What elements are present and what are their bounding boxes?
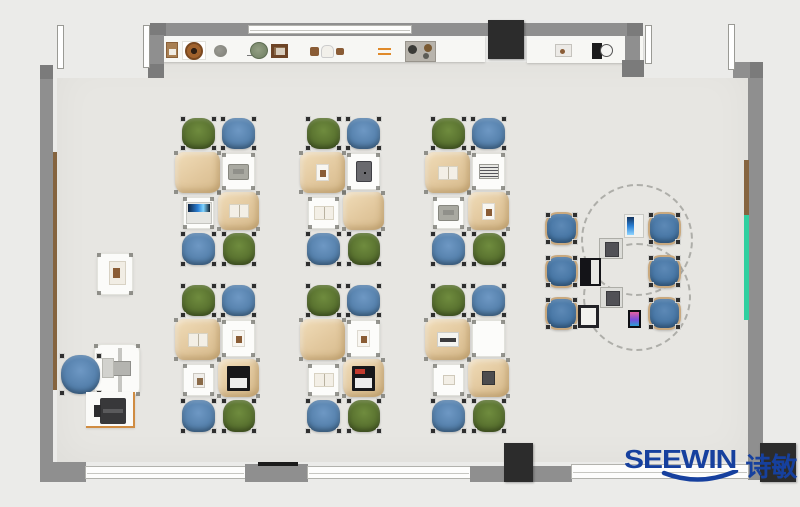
student-desk-white: [183, 197, 214, 229]
round-table-chair: [545, 255, 578, 288]
shelf-item-plate: [182, 41, 206, 60]
teacher-shelf-item: [109, 261, 126, 285]
right-wall-wood-strip: [744, 160, 749, 215]
desk-item-laptop-screen-red: [352, 366, 375, 391]
desk-item-paper: [232, 330, 245, 347]
logo-text-wrap: SEEWIN: [624, 446, 736, 480]
chair-blue: [432, 400, 465, 432]
student-desk-white: [308, 364, 339, 396]
chair-green: [223, 233, 255, 265]
round-table-rd-console: [600, 287, 623, 308]
bottom-wall-cabinet: [504, 443, 533, 482]
top-wall-corner-right: [627, 23, 643, 36]
chair-blue: [307, 233, 340, 265]
seewin-logo: SEEWIN 诗敏: [624, 446, 797, 484]
chair-blue: [222, 118, 255, 149]
round-table-chair: [648, 255, 681, 288]
student-desk-tan: [343, 192, 384, 230]
round-table-rd-tablet: [624, 214, 644, 238]
student-desk-tan: [218, 359, 259, 397]
chair-blue: [347, 285, 380, 316]
shelf-item-frame: [271, 44, 288, 58]
round-table-chair: [545, 297, 578, 330]
desk-item-book-small: [443, 375, 455, 385]
shelf-item-mini-brown: [310, 47, 319, 56]
student-desk-tan: [300, 152, 345, 193]
door-leaf-3: [645, 25, 652, 64]
teacher-office-chair: [61, 355, 100, 394]
desk-cluster-2: [300, 118, 383, 268]
bottom-window-1: [85, 466, 246, 479]
top-wall-cabinet: [488, 20, 524, 59]
teacher-monitor: [111, 361, 131, 376]
bottom-wall-vent: [258, 462, 298, 466]
shelf-item-mini-white: [321, 45, 334, 58]
chair-blue: [472, 118, 505, 149]
desk-item-book: [438, 166, 458, 180]
student-desk-tan: [175, 319, 220, 360]
shelf-item-tray: [405, 41, 436, 62]
student-desk-tan: [218, 192, 259, 230]
left-wall: [40, 65, 53, 470]
desk-item-paper: [357, 330, 370, 347]
desk-cluster-1: [175, 118, 258, 268]
student-desk-tan: [468, 192, 509, 230]
desk-item-paper: [316, 164, 329, 181]
teacher-desk-pad: [102, 358, 114, 378]
right-wall-green-board: [744, 215, 749, 320]
chair-green: [432, 118, 465, 149]
chair-green: [307, 285, 340, 316]
door-leaf-4: [728, 24, 735, 70]
shelf-item-box-brown: [166, 42, 178, 58]
round-table-chair: [545, 212, 578, 245]
shelf-item-clock: [592, 41, 613, 60]
chair-green: [473, 400, 505, 432]
student-desk-white: [433, 364, 464, 396]
logo-cjk-text: 诗敏: [745, 446, 797, 484]
round-table-chair: [648, 212, 681, 245]
top-wall-window: [248, 25, 412, 34]
bottom-left-corner: [40, 462, 86, 482]
student-desk-white: [347, 153, 380, 190]
top-right-inner-corner: [622, 60, 644, 77]
shelf-item-mini-brown: [336, 48, 344, 55]
left-wall-wood-strip: [53, 152, 57, 390]
round-table-chair: [648, 297, 681, 330]
shelf-item-stone: [214, 45, 227, 57]
student-desk-tan: [425, 152, 470, 193]
student-desk-tan: [425, 319, 470, 360]
chair-blue: [222, 285, 255, 316]
chair-blue: [432, 233, 465, 265]
student-desk-tan: [175, 152, 220, 193]
bottom-window-2: [307, 466, 471, 479]
top-right-door-opening: [643, 62, 733, 78]
round-table-rd-laptop-white: [578, 305, 599, 328]
door-leaf-1: [57, 25, 64, 69]
desk-cluster-5: [300, 285, 383, 435]
desk-item-photo: [193, 373, 205, 388]
chair-green: [223, 400, 255, 432]
printer: [100, 398, 126, 424]
bottom-wall-pier-1: [245, 464, 308, 482]
desk-cluster-3: [425, 118, 508, 268]
desk-item-paper: [482, 203, 495, 220]
right-wall: [748, 78, 763, 480]
student-desk-white: [433, 197, 464, 229]
round-table-rd-laptop-dark: [580, 258, 601, 286]
student-desk-white: [472, 320, 505, 357]
desk-item-laptop-gray: [438, 205, 459, 221]
student-desk-tan: [468, 359, 509, 397]
chair-blue: [307, 400, 340, 432]
chair-blue: [182, 233, 215, 265]
desk-item-laptop-screen: [227, 366, 250, 391]
classroom-floor-plan: SEEWIN 诗敏: [0, 0, 800, 507]
chair-green: [182, 285, 215, 316]
door-leaf-2: [143, 25, 150, 68]
desk-item-book: [188, 333, 208, 347]
student-desk-white: [347, 320, 380, 357]
student-desk-white: [222, 320, 255, 357]
desk-item-device: [482, 371, 495, 385]
chair-blue: [347, 118, 380, 149]
logo-swoosh-icon: [660, 470, 740, 484]
student-desk-white: [472, 153, 505, 190]
desk-item-book: [229, 204, 249, 218]
student-desk-white: [183, 364, 214, 396]
chair-green: [307, 118, 340, 149]
shelf-item-orange-lines: [378, 48, 391, 55]
desk-cluster-6: [425, 285, 508, 435]
desk-item-book: [314, 206, 334, 220]
chair-green: [182, 118, 215, 149]
top-left-door-opening: [53, 62, 148, 78]
top-left-inner-corner: [148, 64, 164, 78]
desk-item-laptop-gray: [228, 164, 249, 180]
chair-blue: [472, 285, 505, 316]
student-desk-white: [308, 197, 339, 229]
desk-item-laptop-blue: [186, 202, 212, 224]
left-wall-top-corner: [40, 65, 53, 79]
desk-item-typewriter: [437, 332, 459, 347]
desk-item-book: [314, 373, 334, 387]
student-desk-tan: [300, 319, 345, 360]
round-table-rd-phone: [628, 310, 641, 328]
desk-item-tablet: [356, 161, 372, 182]
student-desk-white: [222, 153, 255, 190]
chair-green: [348, 233, 380, 265]
shelf-item-gadget: [555, 44, 572, 57]
student-desk-tan: [343, 359, 384, 397]
chair-blue: [182, 400, 215, 432]
chair-green: [473, 233, 505, 265]
right-wall-top-corner: [750, 62, 763, 78]
shelf-item-plant: [250, 42, 268, 59]
chair-green: [432, 285, 465, 316]
round-table-rd-console: [599, 238, 623, 259]
desk-item-notebook: [479, 164, 499, 179]
desk-cluster-4: [175, 285, 258, 435]
chair-green: [348, 400, 380, 432]
